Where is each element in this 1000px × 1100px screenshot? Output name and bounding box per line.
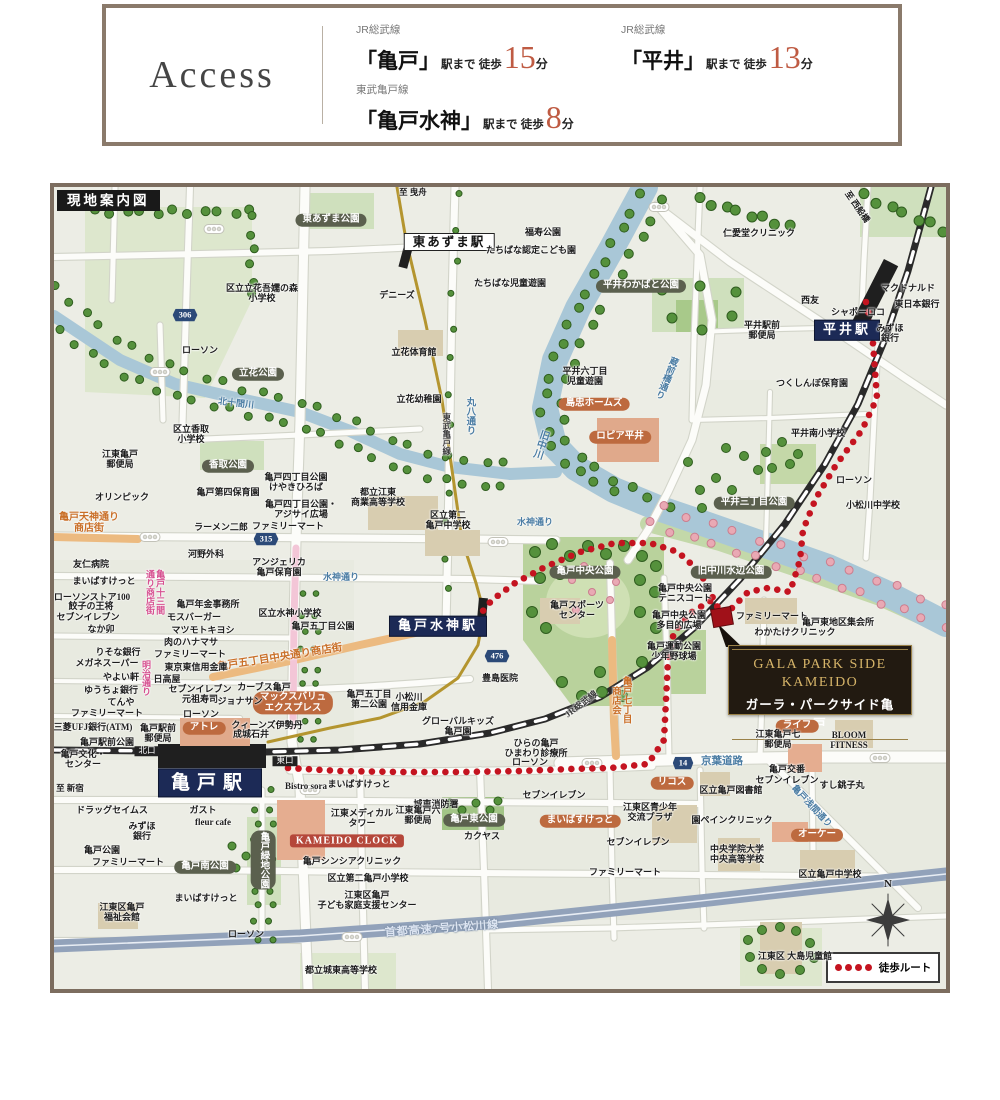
- map-poi-label: デニーズ: [379, 290, 415, 300]
- map-poi-label: 園ペインクリニック: [691, 815, 772, 825]
- map-poi-label: マツモトキヨシ: [171, 625, 234, 635]
- map-poi-label: 日高屋: [153, 674, 180, 684]
- map-poi-label: グローバルキッズ亀戸園: [422, 716, 494, 736]
- map-poi-label: 区立亀戸中学校: [798, 869, 861, 879]
- station-kameido: 亀戸駅: [158, 768, 262, 797]
- map-poi-label: 亀戸五丁目公園: [291, 621, 354, 631]
- map-poi-label: ファミリーマート: [71, 708, 143, 718]
- map-poi-label: 豊島医院: [482, 673, 518, 683]
- map-poi-label: 都立江東商業高等学校: [351, 487, 405, 507]
- station-kameido-suijin: 亀戸水神駅: [389, 616, 487, 637]
- map-poi-label: 区立亀戸図書館: [699, 785, 762, 795]
- map-poi-label: 東京東信用金庫: [164, 662, 227, 672]
- map-poi-label: 成城石井: [233, 729, 269, 739]
- map-poi-label: 小松川中学校: [846, 500, 900, 510]
- map-poi-label: たちばな児童遊園: [474, 278, 546, 288]
- map-poi-label: 亀戸第四保育園: [196, 487, 259, 497]
- map-poi-label: ファミリーマート: [736, 611, 808, 621]
- map-poi-label: ファミリーマート: [92, 857, 164, 867]
- property-name-en-line1: GALA PARK SIDE: [742, 656, 898, 674]
- map-poi-label: オリンピック: [95, 492, 149, 502]
- map-poi-label: 区立水神小学校: [258, 608, 321, 618]
- station-higashi-azuma: 東あずま駅: [404, 233, 495, 251]
- exit-east: 東口: [272, 756, 297, 766]
- map-poi-label: 区立香取小学校: [173, 424, 209, 444]
- map-poi-label: 江東区青少年交流プラザ: [623, 802, 677, 822]
- map-poi-label: やよい軒: [103, 672, 139, 682]
- map-poi-label: 亀戸五丁目第二公園: [346, 689, 391, 709]
- station-hirai: 平井駅: [814, 320, 880, 341]
- road-name-label: 京葉道路: [701, 756, 743, 768]
- map-poi-label: 平井駅前郵便局: [744, 320, 780, 340]
- map-poi-label: 江東メディカルタワー: [331, 808, 393, 828]
- map-poi-label: セブンイレブン: [755, 775, 818, 785]
- route-number-shield: 476: [485, 650, 510, 663]
- map-poi-label: 江東亀戸七郵便局: [755, 729, 800, 749]
- park-name-pill: 平井三丁目公園: [714, 497, 795, 510]
- map-poi-label: 江東区 大島児童館: [758, 951, 832, 961]
- map-poi-label: 江東亀戸郵便局: [102, 449, 138, 469]
- map-poi-label: メガネスーパー: [76, 658, 139, 668]
- park-name-pill: 東あずま公園: [295, 214, 366, 227]
- map-poi-label: 江東亀戸六郵便局: [395, 805, 440, 825]
- map-poi-label: 友仁病院: [73, 559, 109, 569]
- map-poi-label: りそな銀行: [95, 647, 140, 657]
- route-number-shield: 14: [673, 757, 694, 770]
- divider: [322, 26, 323, 124]
- map-poi-label: 中央学院大学中央高等学校: [710, 844, 764, 864]
- road-name-label: 水神通り: [517, 517, 553, 527]
- park-name-pill: 亀戸中央公園: [549, 566, 620, 579]
- map-poi-label: 平井六丁目児童遊園: [562, 366, 607, 386]
- map-poi-label: 都立城東高等学校: [305, 965, 377, 975]
- map-poi-label: セブンイレブン: [56, 612, 119, 622]
- map-poi-label: ローソン: [182, 345, 218, 355]
- map-poi-label: セブンイレブン: [606, 837, 669, 847]
- map-poi-label: 亀戸運動公園少年野球場: [647, 641, 701, 661]
- map-poi-label: 江東区亀戸子ども家庭支援センター: [317, 890, 416, 910]
- property-name-jp: ガーラ・パークサイド亀戸: [742, 694, 898, 732]
- map-poi-label: ひらの亀戸ひまわり診療所: [504, 738, 567, 758]
- shopping-street-label: 明治通り: [141, 660, 151, 696]
- map-poi-label: 東日本銀行: [894, 299, 939, 309]
- walk-route-legend: 徒歩ルート: [826, 952, 940, 983]
- road-name-label: 丸八通り: [464, 397, 475, 435]
- map-poi-label: 亀戸四丁目公園けやきひろば: [264, 472, 327, 492]
- map-poi-label: 江東区亀戸福祉会館: [99, 902, 144, 922]
- map-poi-label: 小松川信用金庫: [391, 692, 427, 712]
- map-poi-label: ジョナサン: [217, 696, 262, 706]
- map-poi-label: ローソン: [228, 929, 264, 939]
- park-name-pill: 平井わかばと公園: [596, 280, 686, 293]
- map-poi-label: ガスト: [189, 805, 216, 815]
- map-poi-label: 至 曳舟: [399, 188, 427, 198]
- map-poi-label: 餃子の王将: [68, 601, 113, 611]
- access-route: JR総武線「亀戸」駅まで 徒歩15分: [356, 22, 548, 76]
- legend-label: 徒歩ルート: [879, 960, 932, 975]
- map-poi-label: 仁愛堂クリニック: [723, 228, 795, 238]
- map-poi-label: 区立立花吾嬬の森小学校: [226, 283, 298, 303]
- map-poi-label: 立花幼稚園: [396, 394, 441, 404]
- map-poi-label: 亀戸公園: [84, 845, 120, 855]
- map-poi-label: ローソン: [512, 757, 548, 767]
- map-poi-label: シャポーロコ: [831, 307, 885, 317]
- map-poi-label: 立花体育館: [391, 347, 436, 357]
- map-poi-label: モスバーガー: [167, 612, 221, 622]
- shopping-street-label: 亀戸十三間通り商店街: [145, 570, 165, 615]
- route-dot-icon: [845, 964, 852, 971]
- map-poi-label: 亀戸東地区集会所: [802, 617, 874, 627]
- map-poi-label: アンジェリカ亀戸保育園: [252, 557, 306, 577]
- map-poi-label: すし銚子丸: [819, 780, 864, 790]
- shop-name-pill: リコス: [651, 777, 694, 790]
- property-callout-box: GALA PARK SIDE KAMEIDO ガーラ・パークサイド亀戸: [728, 645, 912, 715]
- park-name-pill: 亀戸東公園: [443, 814, 505, 827]
- shop-name-pill: マックスバリュエクスプレス: [253, 691, 333, 714]
- shop-name-pill: ロピア平井: [589, 431, 651, 444]
- map-poi-label: セブンイレブン: [522, 790, 585, 800]
- route-dot-icon: [835, 964, 842, 971]
- shop-name-pill: 島忠ホームズ: [559, 398, 630, 411]
- rail-line-label: 東武亀戸線: [441, 413, 451, 456]
- map-poi-label: まいばすけっと: [174, 893, 237, 903]
- park-name-pill: 旧中川水辺公園: [691, 566, 772, 579]
- map-poi-label: 西友: [801, 295, 819, 305]
- map-poi-label: 亀戸シンシアクリニック: [303, 856, 402, 866]
- map-poi-label: 亀戸四丁目公園・アジサイ広場: [265, 499, 337, 519]
- map-poi-label: ラーメン二郎: [194, 522, 248, 532]
- map-poi-label: 至 新宿: [56, 784, 84, 794]
- shop-name-pill: KAMEIDO CLOCK: [290, 834, 404, 847]
- exit-north: 北口: [134, 746, 159, 756]
- map-poi-label: 亀戸駅前郵便局: [140, 723, 176, 743]
- shop-name-pill: アトレ: [183, 722, 226, 735]
- shopping-street-label: 亀戸天神通り商店街: [59, 512, 119, 534]
- park-name-pill: 亀戸南公園: [174, 861, 236, 874]
- map-poi-label: 肉のハナマサ: [164, 637, 218, 647]
- map-poi-label: N: [884, 878, 892, 890]
- map-poi-label: ローソン: [836, 475, 872, 485]
- map-poi-label: わかたけクリニック: [754, 627, 835, 637]
- map-poi-label: 亀戸中央公園テニスコート: [658, 583, 712, 603]
- map-poi-label: BLOOMFITNESS: [830, 730, 868, 750]
- park-name-pill: 香取公園: [202, 460, 254, 473]
- access-map-page: { "access": { "title": "Access", "accent…: [0, 0, 1000, 1100]
- access-route: JR総武線「平井」駅まで 徒歩13分: [621, 22, 813, 76]
- map-poi-label: 亀戸中央公園多目的広場: [652, 610, 706, 630]
- park-name-pill: 立花公園: [232, 368, 284, 381]
- map-poi-label: fleur cafe: [195, 817, 231, 827]
- shopping-street-label: 亀戸七丁目商店会: [609, 676, 630, 724]
- map-poi-label: ローソン: [183, 709, 219, 719]
- route-number-shield: 315: [254, 533, 279, 546]
- map-poi-label: つくしんぼ保育園: [776, 378, 848, 388]
- shop-name-pill: まいばすけっと: [540, 815, 621, 828]
- map-poi-label: なか卯: [87, 624, 114, 634]
- map-poi-label: ファミリーマート: [589, 867, 661, 877]
- route-dot-icon: [855, 964, 862, 971]
- map-poi-label: マクドナルド: [881, 283, 935, 293]
- route-number-shield: 306: [173, 309, 198, 322]
- map-poi-label: 亀戸駅前公園: [80, 737, 134, 747]
- map-poi-label: 亀戸交番: [769, 764, 805, 774]
- map-poi-label: 三菱UFJ銀行(ATM): [54, 722, 132, 732]
- access-panel: Access JR総武線「亀戸」駅まで 徒歩15分JR総武線「平井」駅まで 徒歩…: [102, 4, 902, 146]
- road-name-label: 水神通り: [323, 572, 359, 582]
- map-poi-label: ドラッグセイムス: [76, 805, 148, 815]
- map-poi-label: まいばすけっと: [327, 779, 390, 789]
- area-map: 現地案内図 GALA PARK SIDE KAMEIDO ガーラ・パークサイド亀…: [50, 183, 950, 993]
- map-poi-label: てんや: [107, 697, 134, 707]
- map-poi-label: 区立第二亀戸小学校: [327, 873, 408, 883]
- map-poi-label: ファミリーマート: [154, 649, 226, 659]
- map-poi-label: 亀戸文化・センター: [60, 749, 105, 769]
- map-poi-label: みずほ銀行: [128, 821, 155, 841]
- map-poi-label: まいばすけっと: [72, 576, 135, 586]
- access-title: Access: [106, 8, 318, 142]
- access-route: 東武亀戸線「亀戸水神」駅まで 徒歩8分: [356, 82, 574, 136]
- map-corner-title: 現地案内図: [57, 190, 160, 211]
- route-dot-icon: [865, 964, 872, 971]
- map-poi-label: ファミリーマート: [252, 521, 324, 531]
- map-poi-label: カクヤス: [464, 831, 500, 841]
- map-poi-label: 区立第二亀戸中学校: [425, 510, 470, 530]
- map-poi-label: Bistro sora: [285, 781, 327, 791]
- map-poi-label: 福寿公園: [525, 227, 561, 237]
- map-poi-label: みずほ銀行: [876, 323, 903, 343]
- map-poi-label: 亀戸年金事務所: [176, 599, 239, 609]
- map-poi-label: 亀戸スポーツセンター: [550, 600, 604, 620]
- map-poi-label: ゆうちょ銀行: [84, 685, 138, 695]
- map-poi-label: 平井南小学校: [791, 428, 845, 438]
- map-poi-label: カーブス亀戸: [237, 682, 290, 692]
- map-canvas: 現地案内図 GALA PARK SIDE KAMEIDO ガーラ・パークサイド亀…: [54, 187, 946, 989]
- property-name-en-line2: KAMEIDO: [742, 674, 898, 692]
- map-poi-label: たちばな認定こども園: [486, 245, 576, 255]
- map-poi-label: 河野外科: [188, 549, 224, 559]
- shop-name-pill: オーケー: [791, 829, 843, 842]
- park-name-pill: 亀戸緑地公園: [251, 831, 276, 890]
